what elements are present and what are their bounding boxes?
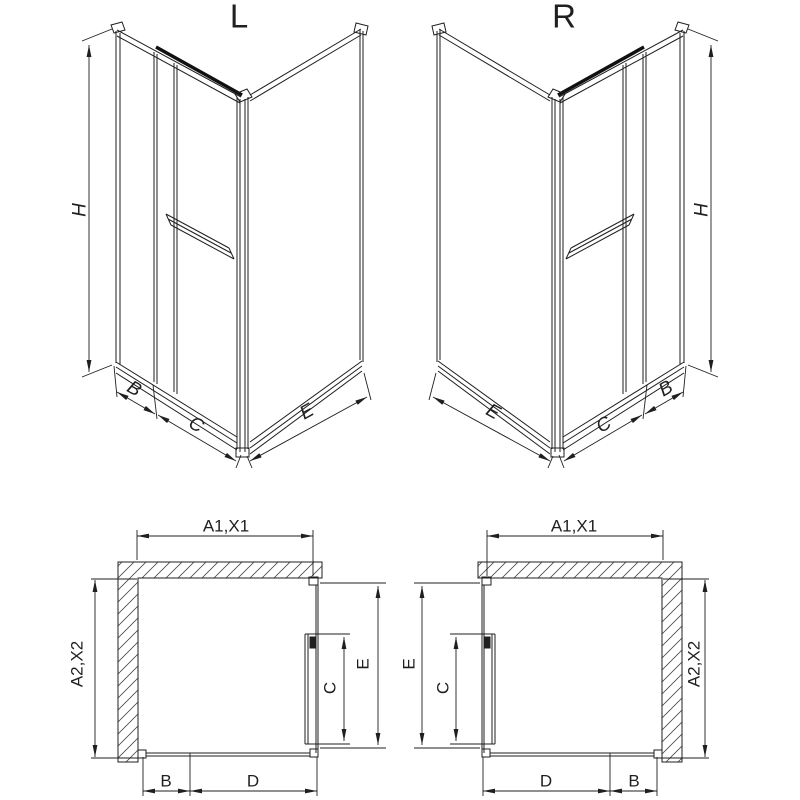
- iso-left-dim-height-label: H: [70, 203, 91, 217]
- plan-left-dim-width-label: A1,X1: [203, 517, 249, 536]
- iso-right-title: R: [552, 0, 576, 35]
- iso-left-dim-side-label: E: [296, 400, 318, 425]
- plan-right-dim-door-label: C: [434, 682, 453, 694]
- drawing-page: L H B C E R H E C B A1,X1 A2,X2 C E B D …: [0, 0, 800, 800]
- iso-left-title: L: [230, 0, 248, 35]
- shower-enclosure-technical-drawing: L H B C E R H E C B A1,X1 A2,X2 C E B D …: [0, 0, 800, 800]
- plan-left-dim-fixed-label: B: [160, 772, 171, 791]
- plan-right-dim-side-label: E: [400, 658, 419, 669]
- iso-view-left: [82, 22, 371, 468]
- plan-left-dim-depth-label: A2,X2: [68, 641, 87, 687]
- plan-left-hatched-walls: [118, 562, 322, 762]
- plan-right-dim-depth-label: A2,X2: [685, 641, 704, 687]
- plan-right-dim-opening-label: D: [540, 772, 552, 791]
- plan-left-dim-door-label: C: [321, 682, 340, 694]
- plan-right-hatched-walls: [478, 562, 682, 762]
- plan-left-dim-opening-label: D: [247, 772, 259, 791]
- plan-right-dim-fixed-label: B: [628, 772, 639, 791]
- iso-view-right: [429, 22, 718, 468]
- plan-right-dim-width-label: A1,X1: [551, 517, 597, 536]
- iso-right-dim-height-label: H: [692, 203, 713, 217]
- plan-left-dim-side-label: E: [354, 658, 373, 669]
